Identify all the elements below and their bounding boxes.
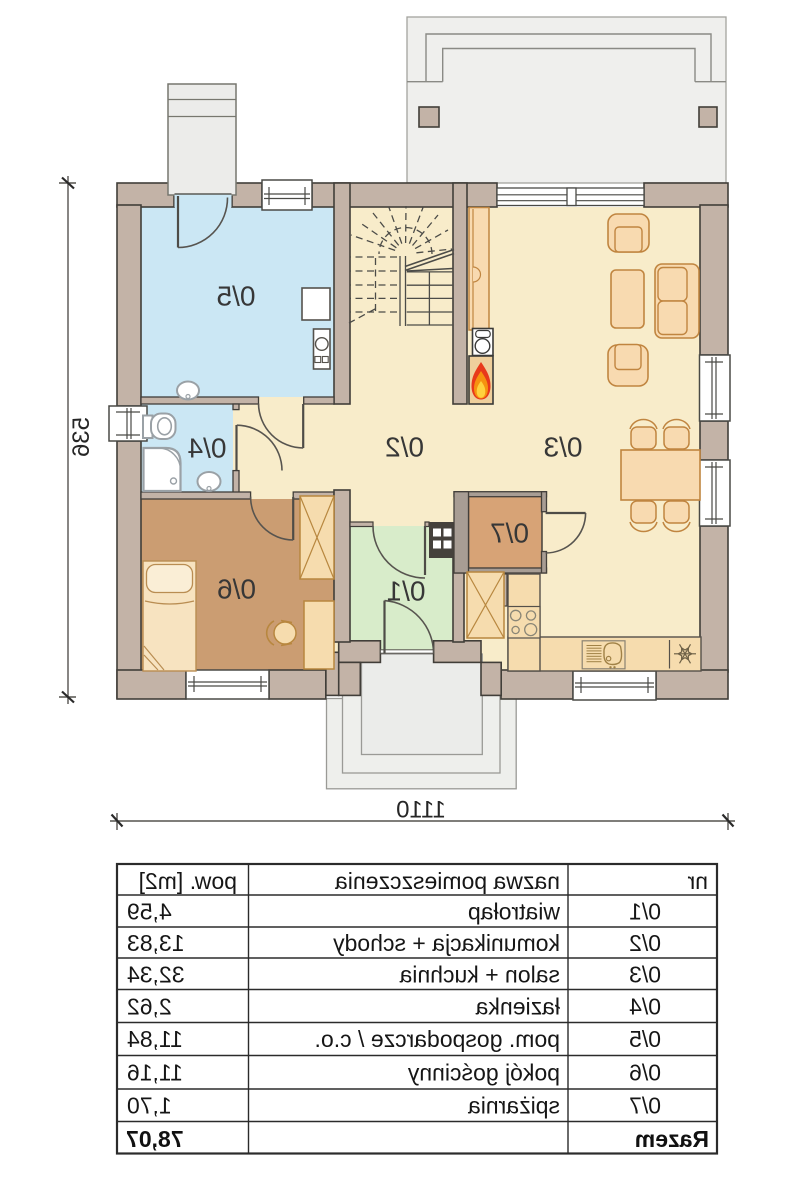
- svg-text:0/6: 0/6: [217, 574, 256, 605]
- svg-text:0/5: 0/5: [217, 281, 256, 312]
- svg-text:nr: nr: [687, 868, 708, 894]
- svg-text:78,07: 78,07: [126, 1126, 184, 1152]
- svg-text:salon + kuchnia: salon + kuchnia: [399, 962, 560, 988]
- svg-text:0/2: 0/2: [629, 930, 661, 956]
- svg-text:łazienka: łazienka: [475, 994, 560, 1020]
- svg-text:0/3: 0/3: [544, 432, 583, 463]
- svg-text:0/2: 0/2: [385, 432, 424, 463]
- svg-text:pom. gospodarcze / c.o.: pom. gospodarcze / c.o.: [315, 1026, 560, 1052]
- svg-text:0/5: 0/5: [629, 1026, 661, 1052]
- svg-text:1110: 1110: [396, 797, 446, 824]
- svg-text:11,16: 11,16: [127, 1060, 183, 1086]
- svg-text:wiatrołap: wiatrołap: [468, 899, 561, 925]
- svg-text:2,62: 2,62: [127, 994, 172, 1020]
- svg-text:4,59: 4,59: [127, 899, 172, 925]
- svg-text:0/1: 0/1: [629, 899, 661, 925]
- svg-text:11,84: 11,84: [127, 1026, 183, 1052]
- svg-text:0/6: 0/6: [629, 1060, 661, 1086]
- svg-text:komunikacja + schody: komunikacja + schody: [333, 930, 560, 956]
- svg-text:spiżarnia: spiżarnia: [468, 1093, 560, 1119]
- svg-text:32,34: 32,34: [127, 962, 185, 988]
- svg-text:pokój gościnny: pokój gościnny: [407, 1060, 560, 1086]
- svg-text:0/4: 0/4: [188, 433, 227, 464]
- svg-text:nazwa pomieszczenia: nazwa pomieszczenia: [335, 868, 560, 894]
- svg-text:1,70: 1,70: [127, 1093, 172, 1119]
- svg-text:0/3: 0/3: [629, 962, 661, 988]
- svg-text:536: 536: [68, 417, 95, 457]
- svg-text:pow. [m2]: pow. [m2]: [139, 868, 237, 894]
- svg-text:0/7: 0/7: [629, 1093, 661, 1119]
- svg-text:0/7: 0/7: [490, 518, 529, 549]
- svg-text:0/4: 0/4: [629, 994, 661, 1020]
- svg-text:Razem: Razem: [635, 1126, 709, 1152]
- svg-text:13,83: 13,83: [127, 930, 185, 956]
- svg-text:0/1: 0/1: [387, 576, 426, 607]
